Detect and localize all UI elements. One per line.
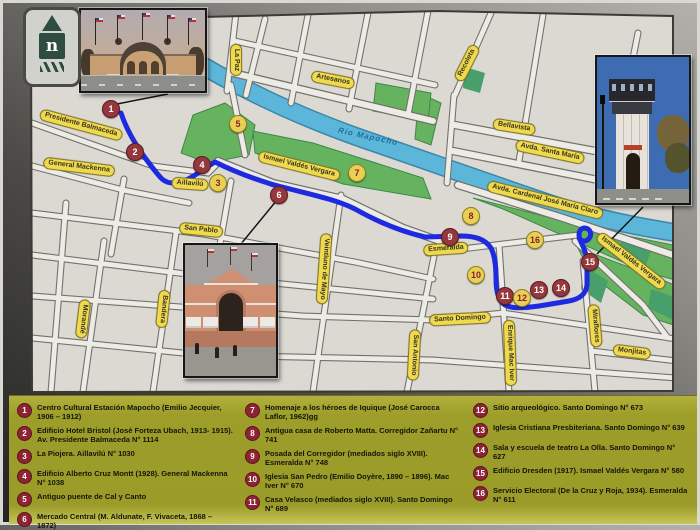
legend-item-number: 4: [17, 469, 32, 484]
legend-item-number: 11: [245, 495, 260, 510]
pedestrian: [233, 345, 237, 356]
legend-item: 10 Iglesia San Pedro (Emilio Doyère, 189…: [245, 472, 461, 490]
legend-item: 7 Homenaje a los héroes de Iquique (José…: [245, 403, 461, 421]
legend-item-number: 2: [17, 426, 32, 441]
flag-pole: [142, 13, 143, 40]
legend: 1 Centro Cultural Estación Mapocho (Emil…: [9, 395, 697, 524]
legend-item: 16 Servicio Electoral (De la Cruz y Roja…: [473, 486, 689, 504]
legend-item: 12 Sitio arqueológico. Santo Domingo N° …: [473, 403, 689, 418]
pedestrian: [215, 347, 219, 358]
legend-item-number: 8: [245, 426, 260, 441]
legend-item: 11 Casa Velasco (mediados siglo XVIII). …: [245, 495, 461, 513]
awning: [203, 317, 218, 328]
station-arch: [151, 61, 159, 74]
legend-item-text: Centro Cultural Estación Mapocho (Emilio…: [37, 403, 233, 421]
market-pediment: [206, 269, 256, 284]
legend-item-text: Antiguo puente de Cal y Canto: [37, 492, 146, 501]
legend-item-number: 12: [473, 403, 488, 418]
entrance-arch: [626, 153, 640, 189]
building-mansard-roof: [609, 79, 655, 102]
legend-item: 8 Antigua casa de Roberto Matta. Corregi…: [245, 426, 461, 444]
legend-item-number: 14: [473, 443, 488, 458]
pedestrian: [195, 343, 199, 354]
legend-item: 9 Posada del Corregidor (mediados siglo …: [245, 449, 461, 467]
flag-pole: [117, 15, 118, 42]
chilean-flag: [143, 13, 150, 17]
legend-item: 15 Edificio Dresden (1917). Ismael Valdé…: [473, 466, 689, 481]
photo-street: [597, 189, 689, 203]
awning: [186, 317, 201, 328]
legend-column-2: 7 Homenaje a los héroes de Iquique (José…: [245, 403, 461, 520]
awning: [243, 317, 258, 328]
flag: [231, 247, 237, 251]
legend-item-text: Sala y escuela de teatro La Olla. Santo …: [493, 443, 689, 461]
legend-item-text: Casa Velasco (mediados siglo XVIII). San…: [265, 495, 461, 513]
legend-item: 3 La Piojera. Aillavilú N° 1030: [17, 449, 233, 464]
traffic-pole: [602, 95, 604, 189]
legend-item-number: 15: [473, 466, 488, 481]
flag: [252, 253, 258, 257]
flag-pole: [188, 18, 189, 45]
mercado-central-photo: [183, 243, 278, 378]
legend-item-text: Edificio Dresden (1917). Ismael Valdés V…: [493, 466, 684, 475]
crosswalk: [603, 198, 663, 200]
photo-road: [81, 75, 205, 91]
edificio-dresden-photo: [595, 55, 691, 205]
station-arch: [127, 61, 135, 74]
legend-item: 5 Antiguo puente de Cal y Canto: [17, 492, 233, 507]
roof-windows: [612, 84, 652, 91]
legend-item-text: Posada del Corregidor (mediados siglo XV…: [265, 449, 461, 467]
awning: [260, 317, 275, 328]
flag: [208, 249, 214, 253]
legend-item-number: 16: [473, 486, 488, 501]
north-compass-badge: n: [23, 7, 81, 87]
chilean-flag: [118, 15, 125, 19]
legend-item-text: Iglesia Cristiana Presbiteriana. Santo D…: [493, 423, 685, 432]
chilean-flag: [168, 15, 175, 19]
legend-item-text: Edificio Hotel Bristol (José Forteza Uba…: [37, 426, 233, 444]
tree: [665, 143, 691, 173]
legend-item-text: Homenaje a los héroes de Iquique (José C…: [265, 403, 461, 421]
legend-item-number: 13: [473, 423, 488, 438]
logo-letter: n: [39, 33, 65, 59]
legend-column-1: 1 Centro Cultural Estación Mapocho (Emil…: [17, 403, 233, 520]
legend-item-number: 1: [17, 403, 32, 418]
legend-item-text: Mercado Central (M. Aldunate, F. Vivacet…: [37, 512, 233, 530]
legend-item-number: 7: [245, 403, 260, 418]
legend-item-number: 5: [17, 492, 32, 507]
legend-item: 6 Mercado Central (M. Aldunate, F. Vivac…: [17, 512, 233, 530]
legend-item-text: Servicio Electoral (De la Cruz y Roja, 1…: [493, 486, 689, 504]
legend-item: 14 Sala y escuela de teatro La Olla. San…: [473, 443, 689, 461]
legend-item-text: Iglesia San Pedro (Emilio Doyère, 1890 –…: [265, 472, 461, 490]
legend-item-number: 10: [245, 472, 260, 487]
map-page: Presidente BalmacedaGeneral MackennaAill…: [3, 3, 697, 522]
estacion-mapocho-photo: [79, 8, 207, 93]
legend-item-text: Antigua casa de Roberto Matta. Corregido…: [265, 426, 461, 444]
flag-pole: [167, 15, 168, 42]
building-dark-floor: [612, 102, 652, 114]
legend-item: 1 Centro Cultural Estación Mapocho (Emil…: [17, 403, 233, 421]
chilean-flag: [189, 18, 196, 22]
legend-item-number: 3: [17, 449, 32, 464]
north-arrow-icon: [42, 15, 62, 31]
legend-item-text: Edificio Alberto Cruz Montt (1928). Gene…: [37, 469, 233, 487]
legend-item: 2 Edificio Hotel Bristol (José Forteza U…: [17, 426, 233, 444]
road-markings: [81, 84, 205, 86]
traffic-light: [600, 95, 605, 104]
legend-item-text: La Piojera. Aillavilú N° 1030: [37, 449, 135, 458]
legend-column-3: 12 Sitio arqueológico. Santo Domingo N° …: [473, 403, 689, 520]
legend-item: 4 Edificio Alberto Cruz Montt (1928). Ge…: [17, 469, 233, 487]
chilean-flag: [96, 18, 103, 22]
market-cornice: [204, 283, 258, 285]
station-arch: [139, 61, 147, 74]
legend-item-number: 9: [245, 449, 260, 464]
entrance-sign: [624, 145, 642, 150]
hatch-icon: [40, 62, 64, 72]
legend-item: 13 Iglesia Cristiana Presbiteriana. Sant…: [473, 423, 689, 438]
legend-item-text: Sitio arqueológico. Santo Domingo N° 673: [493, 403, 643, 412]
flag-pole: [95, 18, 96, 45]
